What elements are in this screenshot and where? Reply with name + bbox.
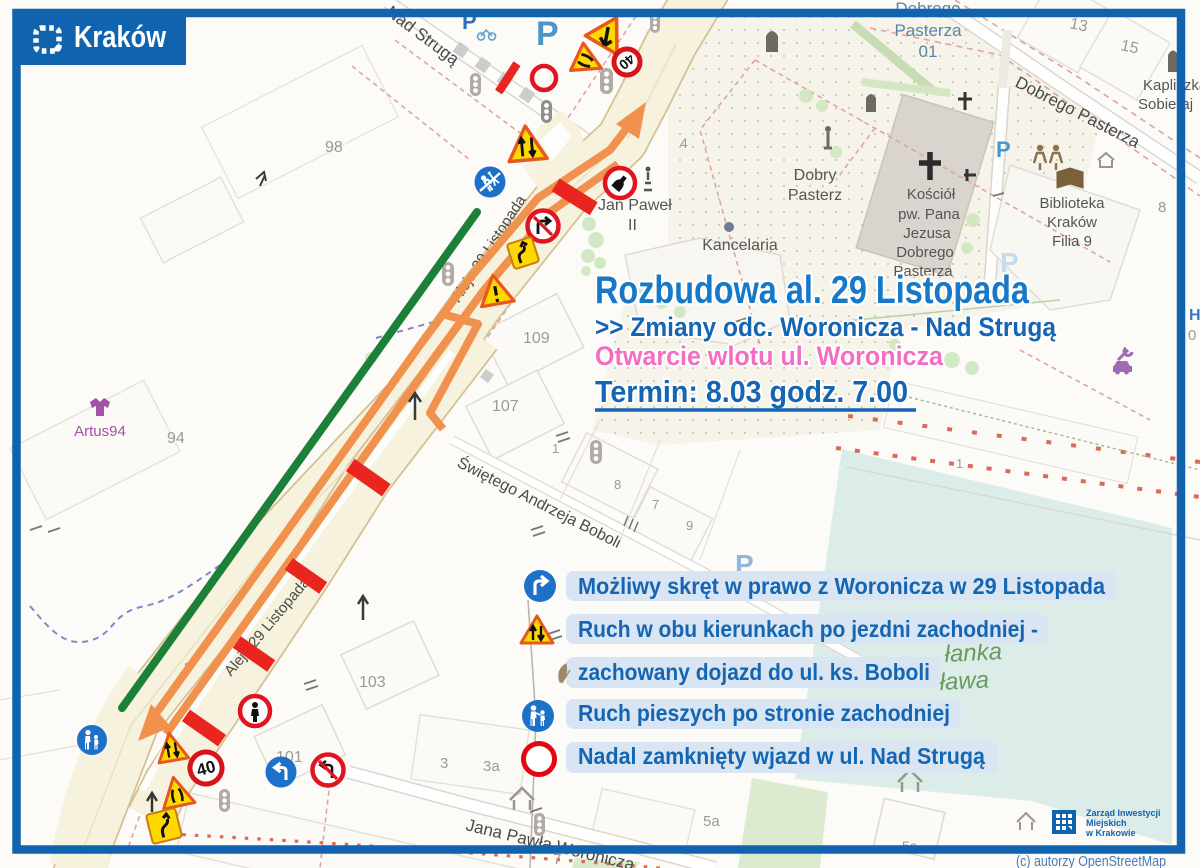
svg-text:pw. Pana: pw. Pana [898,206,960,223]
svg-text:5a: 5a [703,813,720,830]
svg-text:3a: 3a [483,758,500,775]
svg-text:Otwarcie wlotu ul. Woronicza: Otwarcie wlotu ul. Woronicza [595,341,944,371]
svg-text:Pasterza: Pasterza [894,21,962,40]
svg-text:13: 13 [1068,15,1089,35]
svg-text:8: 8 [1158,199,1166,216]
svg-text:Dobrego: Dobrego [896,244,954,261]
svg-text:H: H [1189,307,1200,324]
svg-text:94: 94 [167,430,185,447]
svg-text:Kościół: Kościół [907,186,956,203]
svg-text:Kraków: Kraków [1047,214,1097,231]
svg-text:1: 1 [552,441,559,456]
svg-text:0: 0 [1188,327,1196,344]
svg-text:P: P [536,15,559,53]
svg-text:3: 3 [440,755,448,772]
svg-text:103: 103 [359,674,386,691]
svg-text:15: 15 [1119,37,1140,57]
svg-text:109: 109 [523,330,550,347]
svg-text:Filia 9: Filia 9 [1052,233,1092,250]
svg-text:7: 7 [652,497,659,512]
svg-text:Dobry: Dobry [794,167,837,184]
svg-text:Kraków: Kraków [74,19,167,54]
svg-text:Biblioteka: Biblioteka [1039,195,1105,212]
svg-text:Ruch w obu kierunkach po jezdn: Ruch w obu kierunkach po jezdni zachodni… [578,616,1038,642]
svg-text:Termin: 8.03 godz. 7.00: Termin: 8.03 godz. 7.00 [595,374,908,409]
svg-text:Możliwy skręt w prawo z Woroni: Możliwy skręt w prawo z Woronicza w 29 L… [578,573,1105,599]
svg-text:>> Zmiany odc. Woronicza - Nad: >> Zmiany odc. Woronicza - Nad Strugą [595,312,1057,342]
svg-text:Ruch pieszych po stronie zacho: Ruch pieszych po stronie zachodniej [578,700,950,726]
svg-text:Nadal zamknięty wjazd w ul. Na: Nadal zamknięty wjazd w ul. Nad Strugą [578,743,985,769]
svg-text:107: 107 [492,398,519,415]
svg-text:8: 8 [614,477,621,492]
svg-text:4: 4 [680,135,688,151]
svg-text:Miejskich: Miejskich [1086,818,1127,828]
svg-text:Pasterz: Pasterz [788,187,842,204]
svg-text:w Krakowie: w Krakowie [1085,828,1136,838]
svg-text:1: 1 [956,456,963,471]
svg-text:Jan Paweł: Jan Paweł [598,197,672,214]
svg-text:Jezusa: Jezusa [903,225,951,242]
svg-text:P: P [996,137,1011,162]
svg-text:Artus94: Artus94 [74,423,126,440]
svg-text:(c) autorzy OpenStreetMap: (c) autorzy OpenStreetMap [1016,854,1166,868]
svg-text:Kapliczka: Kapliczka [1143,77,1200,94]
svg-text:Rozbudowa al. 29 Listopada: Rozbudowa al. 29 Listopada [595,269,1029,312]
svg-text:01: 01 [919,42,938,61]
svg-text:ława: ława [939,666,990,696]
svg-text:9: 9 [686,518,693,533]
svg-text:Zarząd Inwestycji: Zarząd Inwestycji [1086,808,1161,818]
svg-text:zachowany dojazd do ul. ks. Bo: zachowany dojazd do ul. ks. Boboli [578,659,930,685]
svg-text:98: 98 [325,139,343,156]
svg-text:II: II [628,217,637,234]
svg-text:Kancelaria: Kancelaria [702,237,778,254]
